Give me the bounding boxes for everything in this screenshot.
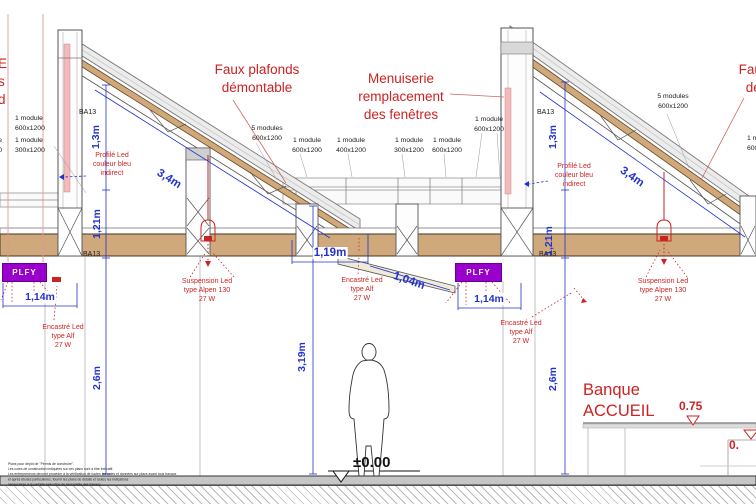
left-wall-column [58, 30, 82, 256]
module-label-mid-300: 1 module 300x1200 [388, 136, 430, 155]
level-marker-counter [687, 416, 699, 425]
annotation-profile-led-left: Profilé Led couleur bleu indirect [86, 151, 138, 178]
section-drawing-sheet: E s d 1 module 600x1200 1 module 300x120… [0, 0, 756, 504]
module-label-mid-600b: 1 module 600x1200 [426, 136, 468, 155]
dim-2-6m-right: 2,6m [547, 367, 559, 391]
annotation-suspension-led-left: Suspension Led type Alpen 130 27 W [170, 277, 244, 304]
module-label-right-600: 1 module 600x1200 [468, 115, 510, 134]
ba13-label-2: BA13 [83, 251, 100, 258]
dim-1-14m-right: 1,14m [473, 293, 505, 305]
right-wall-column [501, 28, 533, 256]
annotation-faux-plafonds-right: Faux plafonds démontable [707, 61, 756, 97]
clipped-right-module-label: 1 module 600x1200 [747, 134, 756, 153]
plfy-box-left: PLFY [2, 263, 47, 282]
level-label-zero: ±0.00 [353, 454, 390, 471]
clipped-left-annotation: E s d [0, 55, 14, 108]
module-label-left-600: 1 module 600x1200 [15, 114, 57, 133]
annotation-menuiserie: Menuiserie remplacement des fenêtres [350, 70, 452, 123]
ba13-label-3: BA13 [537, 109, 554, 116]
clipped-left-module-label: le 00 [0, 136, 2, 155]
window-frame-highlight-right [505, 88, 511, 194]
dim-1-21m-left: 1,21m [91, 209, 103, 239]
module-label-left-300: 1 module 300x1200 [15, 136, 57, 155]
dim-1-3m-right: 1,3m [547, 125, 559, 149]
dim-3-19m: 3,19m [296, 342, 308, 372]
level-label-075: 0.75 [679, 399, 702, 413]
module-label-mid-600a: 1 module 600x1200 [286, 136, 328, 155]
window-frame-highlight-left [64, 44, 70, 192]
dim-1-14m-left: 1,14m [24, 291, 56, 303]
level-label-right-clipped: 0. [729, 438, 739, 452]
annotation-profile-led-right: Profilé Led couleur bleu indirect [548, 162, 600, 189]
level-marker-counter-right [744, 430, 756, 439]
annotation-suspension-led-right: Suspension Led type Alpen 130 27 W [626, 277, 700, 304]
sheet-notes: Plans pour dépôt de "Permis de construir… [8, 462, 223, 487]
dim-1-3m-left: 1,3m [90, 125, 102, 149]
dim-1-21m-right: 1,21m [543, 226, 555, 256]
annotation-encastre-led-center: Encastré Led type Alf 27 W [327, 276, 397, 303]
led-arrowhead [581, 298, 587, 303]
recessed-led-marker [52, 277, 61, 282]
annotation-encastre-led-left: Encastré Led type Alf 27 W [28, 323, 98, 350]
annotation-banque-accueil: Banque ACCUEIL [583, 380, 655, 421]
guide-lines [45, 256, 535, 476]
ground-hatch [0, 485, 756, 504]
dim-2-6m-left: 2,6m [91, 366, 103, 390]
dim-1-19m: 1,19m [313, 247, 348, 259]
ba13-label-1: BA13 [79, 109, 96, 116]
plfy-box-right: PLFY [455, 263, 502, 282]
module-label-mid-400: 1 module 400x1200 [330, 136, 372, 155]
module-label-5mod-right: 5 modules 600x1200 [644, 92, 702, 111]
annotation-encastre-led-right: Encastré Led type Alf 27 W [486, 319, 556, 346]
annotation-faux-plafonds-left: Faux plafonds démontable [183, 61, 331, 97]
